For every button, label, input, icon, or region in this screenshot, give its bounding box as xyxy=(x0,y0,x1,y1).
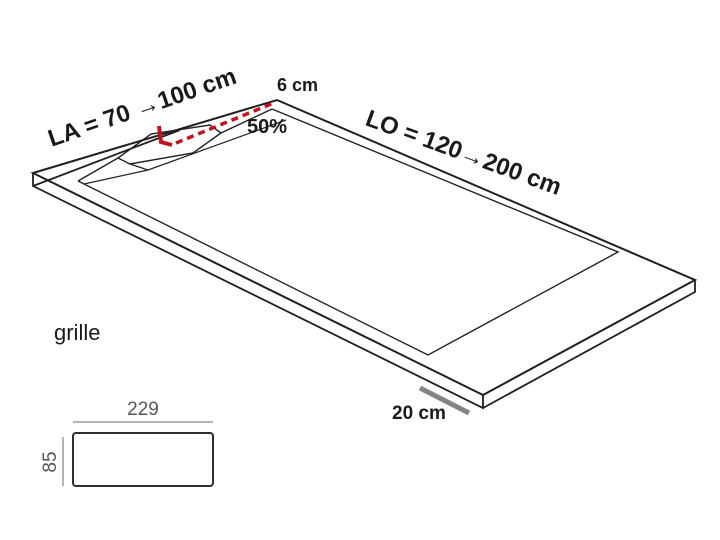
tray-top-face xyxy=(33,100,695,395)
slope-percent-label: 50% xyxy=(247,117,287,138)
grille-rectangle xyxy=(73,433,213,486)
tray-thickness-edges xyxy=(33,130,695,408)
tray-outline xyxy=(33,100,695,408)
grille-drawing xyxy=(63,422,213,486)
grille-width-value: 229 xyxy=(73,400,213,420)
grille-caption: grille xyxy=(54,321,100,344)
basin-edges xyxy=(78,109,618,355)
product-diagram: LA = 70 →100 cm LO = 120→200 cm 6 cm 50%… xyxy=(0,0,720,540)
shower-tray-drawing xyxy=(0,0,720,540)
corner-length-label: 20 cm xyxy=(392,404,446,424)
edge-width-label: 6 cm xyxy=(277,76,318,95)
tray-basin xyxy=(78,109,618,355)
grille-height-value: 85 xyxy=(40,447,62,477)
